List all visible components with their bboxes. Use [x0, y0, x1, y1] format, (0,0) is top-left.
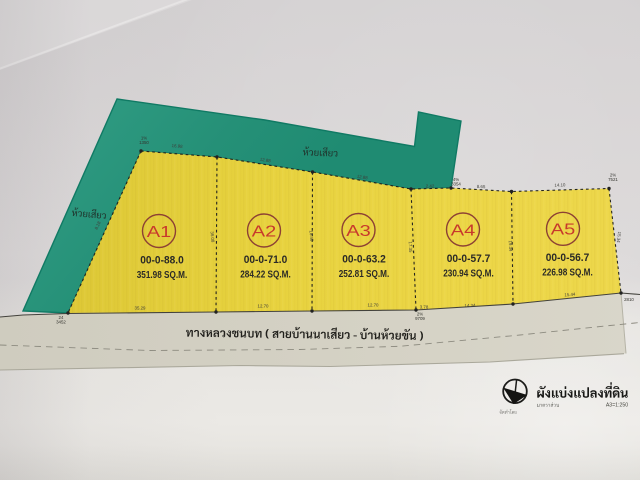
svg-text:14.34: 14.34 — [464, 303, 476, 308]
svg-text:226.98 SQ.M.: 226.98 SQ.M. — [542, 268, 593, 279]
svg-text:12.70: 12.70 — [368, 303, 380, 308]
svg-text:17.35: 17.35 — [408, 241, 414, 253]
svg-text:A1: A1 — [147, 224, 172, 241]
svg-text:00-0-57.7: 00-0-57.7 — [447, 253, 491, 265]
svg-text:14.10: 14.10 — [554, 182, 566, 187]
svg-text:A5: A5 — [551, 222, 576, 239]
svg-text:36.08: 36.08 — [210, 231, 216, 243]
svg-text:2.42: 2.42 — [426, 184, 435, 189]
svg-text:230.94 SQ.M.: 230.94 SQ.M. — [443, 268, 494, 279]
svg-text:2810: 2810 — [624, 297, 634, 302]
svg-text:18.40: 18.40 — [309, 230, 315, 242]
svg-text:252.81 SQ.M.: 252.81 SQ.M. — [339, 269, 390, 280]
svg-text:12.70: 12.70 — [258, 304, 270, 309]
svg-text:00-0-63.2: 00-0-63.2 — [342, 253, 386, 265]
svg-text:A3=1:250: A3=1:250 — [606, 403, 628, 409]
svg-text:1350: 1350 — [139, 140, 149, 145]
svg-text:A2: A2 — [252, 223, 277, 240]
svg-text:00-0-88.0: 00-0-88.0 — [140, 254, 184, 266]
svg-text:7521: 7521 — [608, 177, 618, 182]
svg-text:3452: 3452 — [56, 320, 66, 325]
svg-text:8.65: 8.65 — [477, 184, 486, 189]
svg-text:19.34: 19.34 — [508, 240, 514, 252]
svg-text:A4: A4 — [451, 222, 476, 239]
svg-text:351.98 SQ.M.: 351.98 SQ.M. — [137, 270, 188, 281]
svg-text:284.22 SQ.M.: 284.22 SQ.M. — [240, 269, 291, 280]
svg-text:00-0-71.0: 00-0-71.0 — [244, 254, 288, 266]
svg-text:35.29: 35.29 — [135, 306, 147, 311]
svg-text:15.44: 15.44 — [564, 292, 576, 298]
svg-text:00-0-56.7: 00-0-56.7 — [546, 252, 590, 264]
svg-text:A3: A3 — [346, 223, 371, 240]
svg-text:16.98: 16.98 — [171, 143, 183, 149]
svg-text:9709: 9709 — [415, 316, 425, 321]
svg-text:3354: 3354 — [451, 182, 461, 187]
svg-text:3.78: 3.78 — [420, 305, 429, 310]
